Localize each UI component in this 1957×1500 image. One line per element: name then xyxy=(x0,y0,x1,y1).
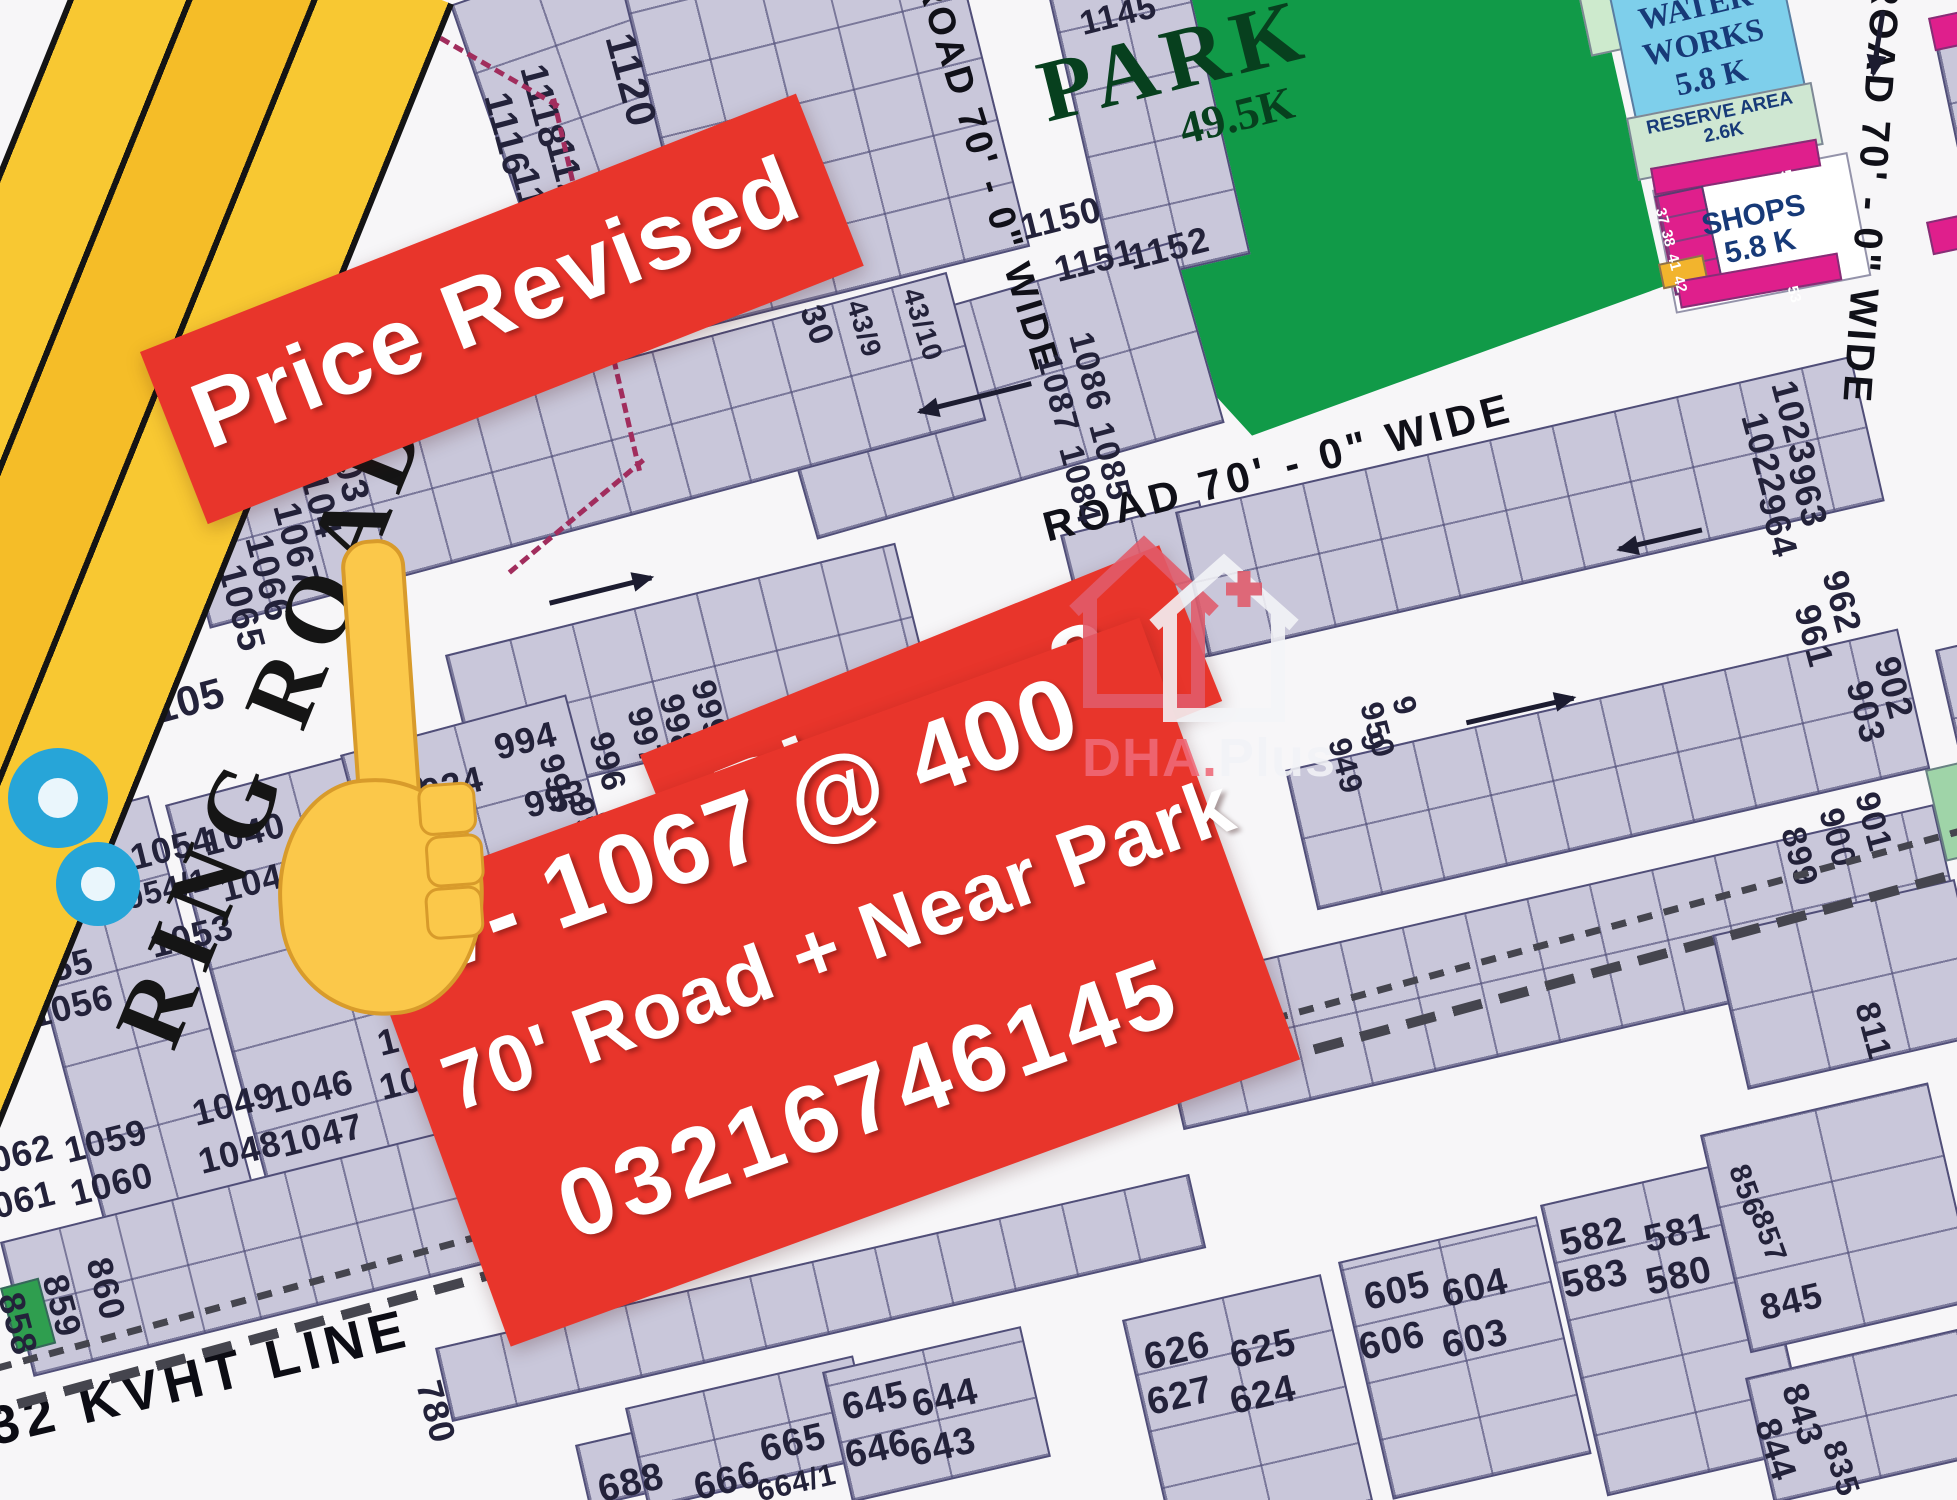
brand-text: DHA.Plus xyxy=(1082,727,1336,789)
plot-block xyxy=(1932,21,1957,328)
plot-map-canvas: PARK 49.5K WATER WORKS 5.8 K RESERVE ARE… xyxy=(0,0,1957,1500)
pointing-finger-icon xyxy=(252,533,495,1026)
finger-knuckle xyxy=(416,781,477,837)
interchange-icon xyxy=(56,842,140,926)
plot-block xyxy=(1926,215,1957,256)
house-logo-icon xyxy=(1058,515,1318,725)
plot-block xyxy=(1928,11,1957,52)
plot-number: 1061 xyxy=(0,1172,60,1233)
arrow-head xyxy=(1863,54,1886,79)
finger-knuckle xyxy=(424,833,485,889)
finger-knuckle xyxy=(424,885,485,941)
arrow-head xyxy=(630,567,656,592)
dha-plus-watermark: DHA.Plus xyxy=(1058,515,1318,855)
interchange-icon xyxy=(8,748,108,848)
road-direction-arrow xyxy=(548,575,651,605)
plot-number: 9 xyxy=(1384,692,1425,720)
